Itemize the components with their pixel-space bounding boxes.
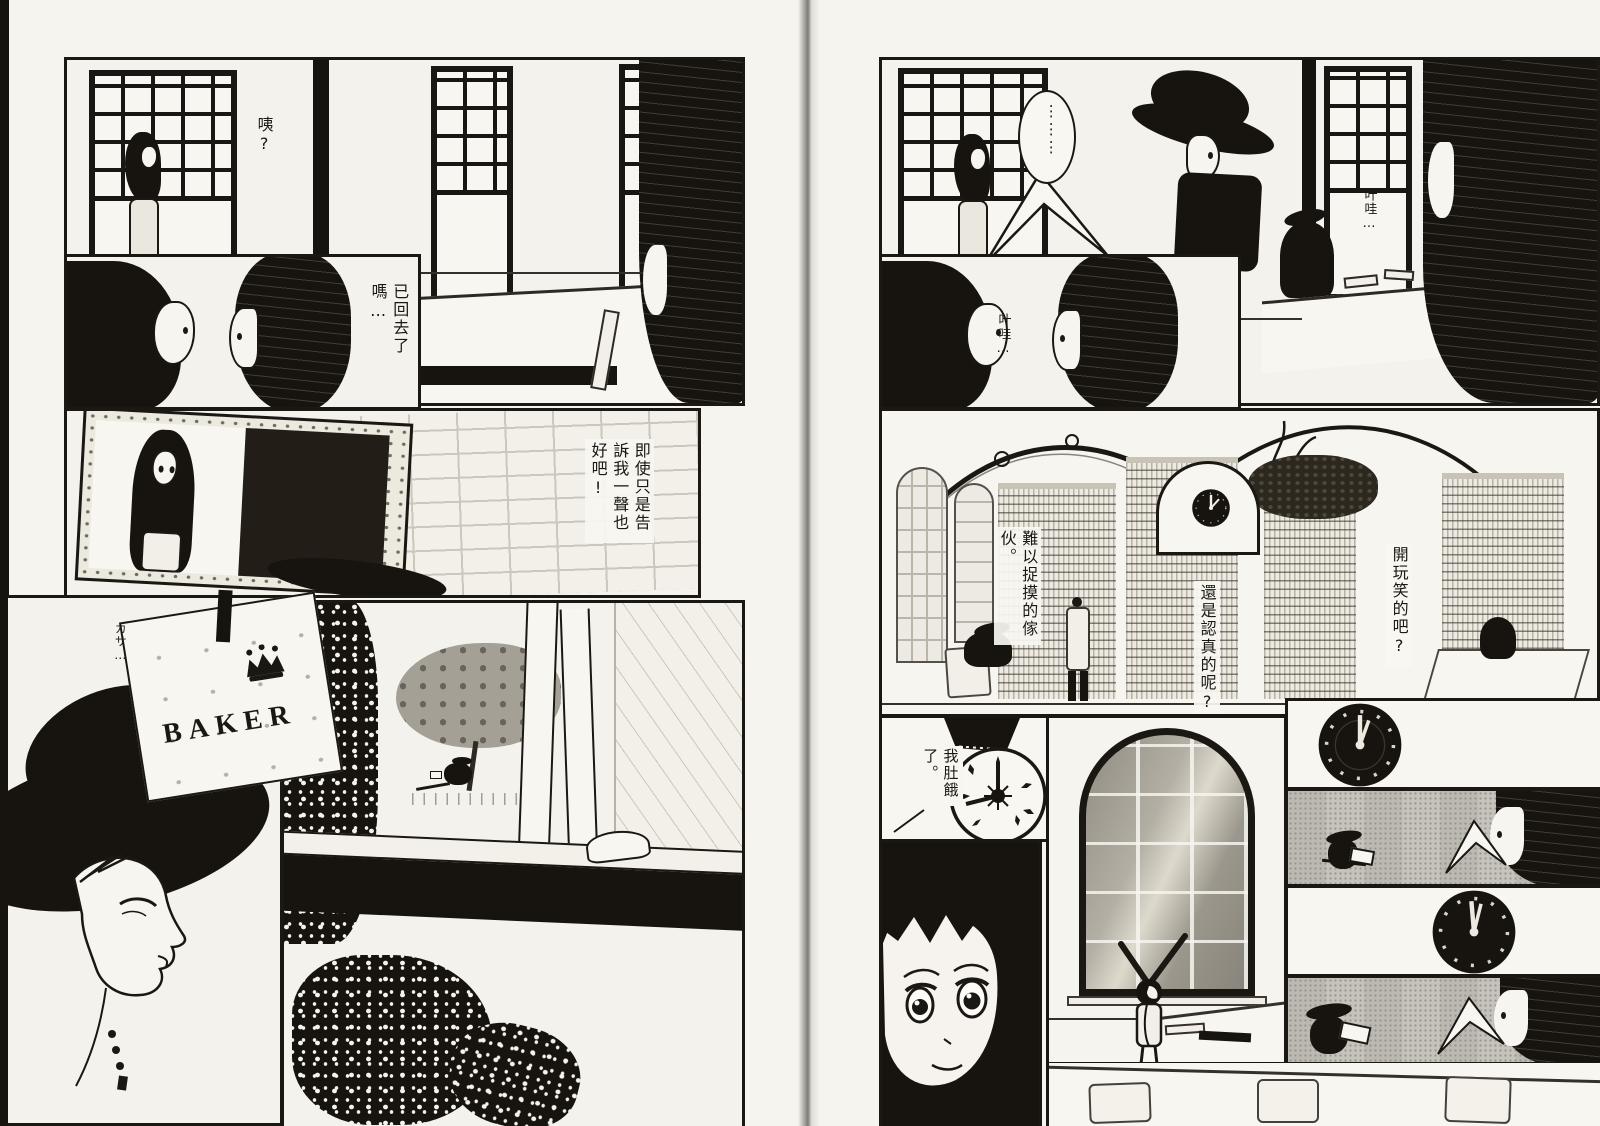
arched-window-icon: [896, 467, 948, 663]
table-edge: [1046, 1066, 1600, 1084]
person-at-table: [1480, 617, 1516, 659]
wall-clock-icon: [1316, 701, 1404, 789]
bag-strap: [216, 590, 233, 643]
panel-library: 難以捉摸的傢伙。 還是認真的呢? 開玩笑的吧?: [879, 408, 1600, 717]
manga-spread: 咦? 已回去了嗎…: [0, 0, 1600, 1126]
speech-serious: 還是認真的呢?: [1194, 581, 1220, 717]
standing-person-leg: [1068, 671, 1076, 701]
girl-b-face: [1052, 309, 1082, 371]
book-on-desk: [1384, 269, 1415, 281]
wristwatch-icon: [882, 718, 1063, 839]
speech-at-least-tell-me: 即使只是告訴我一聲也好吧!: [585, 439, 654, 543]
panel-reading-1: [1285, 788, 1600, 887]
girl-b-face: [229, 307, 259, 369]
foliage: [1248, 455, 1378, 519]
clock-pediment: [1156, 461, 1260, 555]
man-eye: [1208, 152, 1213, 159]
book-icon: [1444, 817, 1508, 879]
speech-silence: ⋮⋮⋮: [1041, 102, 1061, 172]
stretching-girl-art: [1089, 916, 1219, 1064]
standing-person-head: [1072, 597, 1082, 607]
speech-eh: 咦?: [253, 116, 275, 178]
foreground-girl-face: [643, 245, 667, 315]
reader-legs: [416, 782, 450, 791]
library-clock-icon: [1191, 488, 1231, 528]
window-grid: [437, 72, 507, 190]
panel-left-two-girls: 已回去了嗎…: [64, 254, 421, 410]
wall-pillar: [313, 60, 329, 265]
seated-figure: [1280, 222, 1334, 298]
crown-icon: [238, 641, 289, 686]
girl-a-face: [153, 301, 195, 365]
speech-gone-back: 已回去了嗎…: [367, 283, 410, 361]
chair-back: [1257, 1079, 1319, 1123]
window-lower-sash: [437, 190, 507, 298]
sfx-yawn-left: 叶哇…: [994, 313, 1012, 379]
frame-girl-collar: [140, 531, 182, 573]
standing-person-leg: [1080, 671, 1088, 701]
panel-right-two-girls: 叶哇…: [879, 254, 1241, 410]
girl-hair: [125, 132, 161, 202]
white-cloth: [614, 600, 745, 849]
panel-left-frame: 即使只是告訴我一聲也好吧!: [64, 408, 701, 598]
window-icon: [1324, 66, 1412, 300]
panel-reading-2: [1285, 975, 1600, 1065]
frame-light-side: [88, 420, 246, 576]
frame-girl-eye: [169, 466, 174, 473]
foreground-girl-hair: [639, 60, 745, 403]
chair-back: [1444, 1076, 1512, 1124]
panel-arch-window: [1046, 715, 1287, 1065]
panel-clock-1: [1285, 698, 1600, 790]
sfx-rustle: カサ…: [112, 622, 128, 678]
chair-back: [1088, 1082, 1151, 1124]
book-icon: [1436, 994, 1506, 1060]
window-icon: [431, 66, 513, 304]
girl-a-eye: [183, 327, 188, 334]
wall-clock-icon: [1430, 888, 1518, 976]
speech-elusive: 難以捉摸的傢伙。: [994, 527, 1041, 645]
sfx-yawn-top: 叶哇…: [1360, 188, 1378, 254]
speech-hungry: 我肚餓了。: [918, 746, 963, 806]
girl-face-art: [882, 843, 1039, 1123]
reader-book: [430, 771, 442, 779]
panel-left-legs: [281, 600, 745, 1126]
bag-brand-label: BAKER: [161, 698, 299, 751]
panel-girl-face: [879, 840, 1042, 1126]
panel-clock-2: [1285, 885, 1600, 977]
window-grid: [1330, 72, 1406, 188]
leg: [517, 600, 558, 867]
panel-wristwatch: 我肚餓了。: [879, 715, 1066, 842]
leg: [560, 609, 599, 862]
girl-b-eye: [237, 333, 242, 340]
page-seam: [798, 0, 820, 1126]
girl-b-eye: [1060, 335, 1065, 342]
frame-girl-eye: [158, 465, 163, 472]
standing-person-body: [1066, 607, 1090, 671]
baker-bag: BAKER: [119, 592, 343, 803]
arched-window-icon: [954, 483, 994, 643]
panel-table-strip: [1046, 1063, 1600, 1126]
silence-bubble: ⋮⋮⋮: [1018, 90, 1076, 184]
foreground-girl-face: [1428, 142, 1454, 218]
speech-joking: 開玩笑的吧?: [1386, 543, 1412, 667]
foreground-girl-hair: [1423, 60, 1600, 403]
woman-profile-art: [36, 838, 226, 1124]
